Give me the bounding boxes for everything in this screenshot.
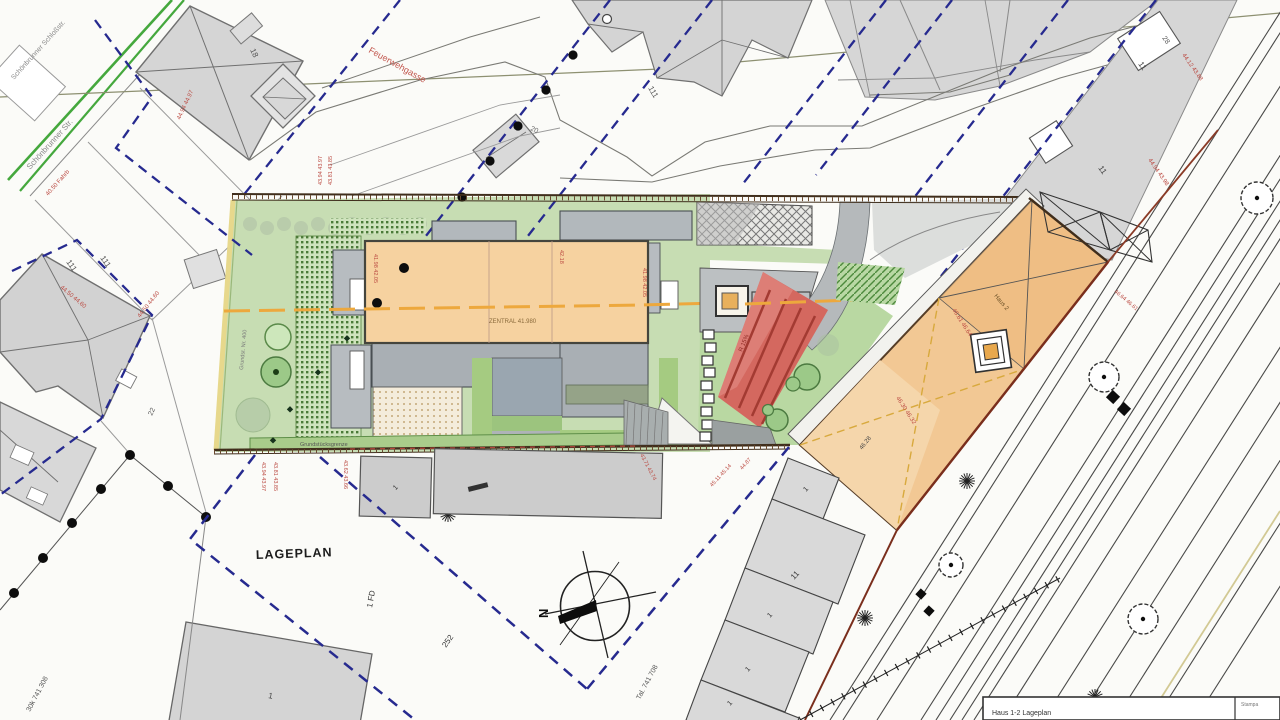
svg-text:41.98 42.05: 41.98 42.05 [372,254,378,283]
svg-text:41.98 42.05: 41.98 42.05 [641,268,647,297]
svg-text:Stampa: Stampa [1241,702,1258,708]
svg-text:43.62 43.66: 43.62 43.66 [342,460,348,489]
svg-text:43.81 43.85: 43.81 43.85 [328,156,334,185]
svg-text:42.18: 42.18 [558,250,564,264]
svg-text:43.94 43.97: 43.94 43.97 [318,156,324,185]
svg-text:Haus 1-2 Lageplan: Haus 1-2 Lageplan [992,710,1051,717]
svg-text:LAGEPLAN: LAGEPLAN [256,545,333,562]
svg-text:ZENTRAL 41.980: ZENTRAL 41.980 [489,319,537,325]
svg-text:43.81 43.85: 43.81 43.85 [272,462,278,491]
svg-text:N: N [536,609,551,618]
svg-text:Grundstücksgrenze: Grundstücksgrenze [300,442,348,448]
svg-text:43.94 43.97: 43.94 43.97 [260,462,266,491]
